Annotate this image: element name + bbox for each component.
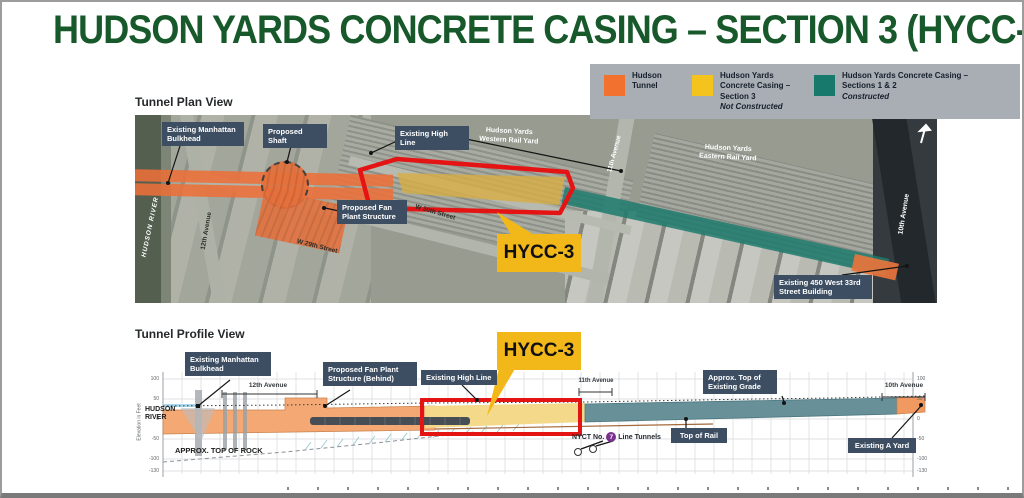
label-approx-top-existing-grade: Approx. Top of Existing Grade xyxy=(703,370,777,394)
hudson-tunnel-swatch xyxy=(604,75,625,96)
slide: HUDSON YARDS CONCRETE CASING – SECTION 3… xyxy=(0,0,1024,498)
y-tick-right: -130 xyxy=(917,468,933,474)
label-existing-high-line: Existing High Line xyxy=(395,126,469,150)
label-existing-manhattan-bulkhead: Existing Manhattan Bulkhead xyxy=(185,352,271,376)
label-fan-plant-behind: Proposed Fan Plant Structure (Behind) xyxy=(323,362,417,386)
y-tick: 100 xyxy=(143,376,159,382)
plan-callout-tail xyxy=(497,212,536,236)
legend: Hudson Tunnel Hudson Yards Concrete Casi… xyxy=(590,64,1020,119)
plan-view-heading: Tunnel Plan View xyxy=(135,95,233,109)
legend-label: Hudson Tunnel xyxy=(632,71,678,96)
nyct-7-line-text: NYCT No. 7 Line Tunnels xyxy=(572,432,661,442)
tunnel-tube-profile xyxy=(310,417,470,425)
hycc3-swatch xyxy=(692,75,713,96)
hycc3-profile-callout: HYCC-3 xyxy=(497,332,581,370)
twelfth-avenue-text: 12th Avenue xyxy=(223,382,313,389)
y-tick: -50 xyxy=(143,436,159,442)
y-tick-right: 50 xyxy=(917,396,933,402)
legend-label: Hudson Yards Concrete Casing – Sections … xyxy=(842,71,968,90)
y-tick: -130 xyxy=(143,468,159,474)
hudson-river-text: HUDSON RIVER xyxy=(145,406,195,423)
eleventh-avenue-text: 11th Avenue xyxy=(567,378,625,384)
legend-status: Not Constructed xyxy=(720,102,783,111)
tenth-avenue-text: 10th Avenue xyxy=(877,382,931,389)
y-axis-label: Elevation in Feet xyxy=(137,403,143,440)
hycc12-swatch xyxy=(814,75,835,96)
western-rail-yard-text: Hudson Yards Western Rail Yard xyxy=(475,126,544,147)
y-tick: -100 xyxy=(143,456,159,462)
nyct-tunnel-circle xyxy=(575,449,582,456)
nyct-7-badge-icon: 7 xyxy=(606,432,616,442)
legend-label: Hudson Yards Concrete Casing – Section 3 xyxy=(720,71,790,101)
label-existing-450-west-33rd: Existing 450 West 33rd Street Building xyxy=(774,275,872,299)
label-proposed-shaft: Proposed Shaft xyxy=(263,124,327,148)
hycc3-casing-area xyxy=(397,173,565,205)
north-arrow-icon xyxy=(920,125,930,143)
tunnel-profile-view: 100 50 0 -50 -100 -130 100 50 0 -50 -100… xyxy=(135,324,937,498)
page-title: HUDSON YARDS CONCRETE CASING – SECTION 3… xyxy=(53,8,971,53)
tunnel-plan-view-map: Existing Manhattan Bulkhead Proposed Sha… xyxy=(135,115,937,303)
label-top-of-rail: Top of Rail xyxy=(671,428,727,443)
nyct-tunnel-circle xyxy=(590,446,597,453)
legend-item-hudson-tunnel: Hudson Tunnel xyxy=(590,71,678,96)
label-existing-manhattan-bulkhead: Existing Manhattan Bulkhead xyxy=(162,122,244,146)
eastern-rail-yard-text: Hudson Yards Eastern Rail Yard xyxy=(695,143,762,164)
label-existing-a-yard: Existing A Yard xyxy=(848,438,916,453)
legend-item-hycc12: Hudson Yards Concrete Casing – Sections … xyxy=(800,71,990,102)
label-proposed-fan-plant: Proposed Fan Plant Structure xyxy=(337,200,407,224)
profile-view-heading: Tunnel Profile View xyxy=(135,327,245,341)
label-existing-high-line: Existing High Line xyxy=(421,370,497,385)
top-of-rock-text: APPROX. TOP OF ROCK xyxy=(175,446,263,455)
y-tick: 50 xyxy=(143,396,159,402)
legend-item-hycc3: Hudson Yards Concrete Casing – Section 3… xyxy=(678,71,800,113)
y-tick-right: -50 xyxy=(917,436,933,442)
hycc3-plan-callout: HYCC-3 xyxy=(497,234,581,272)
cutoff-text-remnant xyxy=(287,487,1017,490)
y-tick-right: 0 xyxy=(917,416,933,422)
y-tick-right: -100 xyxy=(917,456,933,462)
legend-status: Constructed xyxy=(842,92,889,101)
